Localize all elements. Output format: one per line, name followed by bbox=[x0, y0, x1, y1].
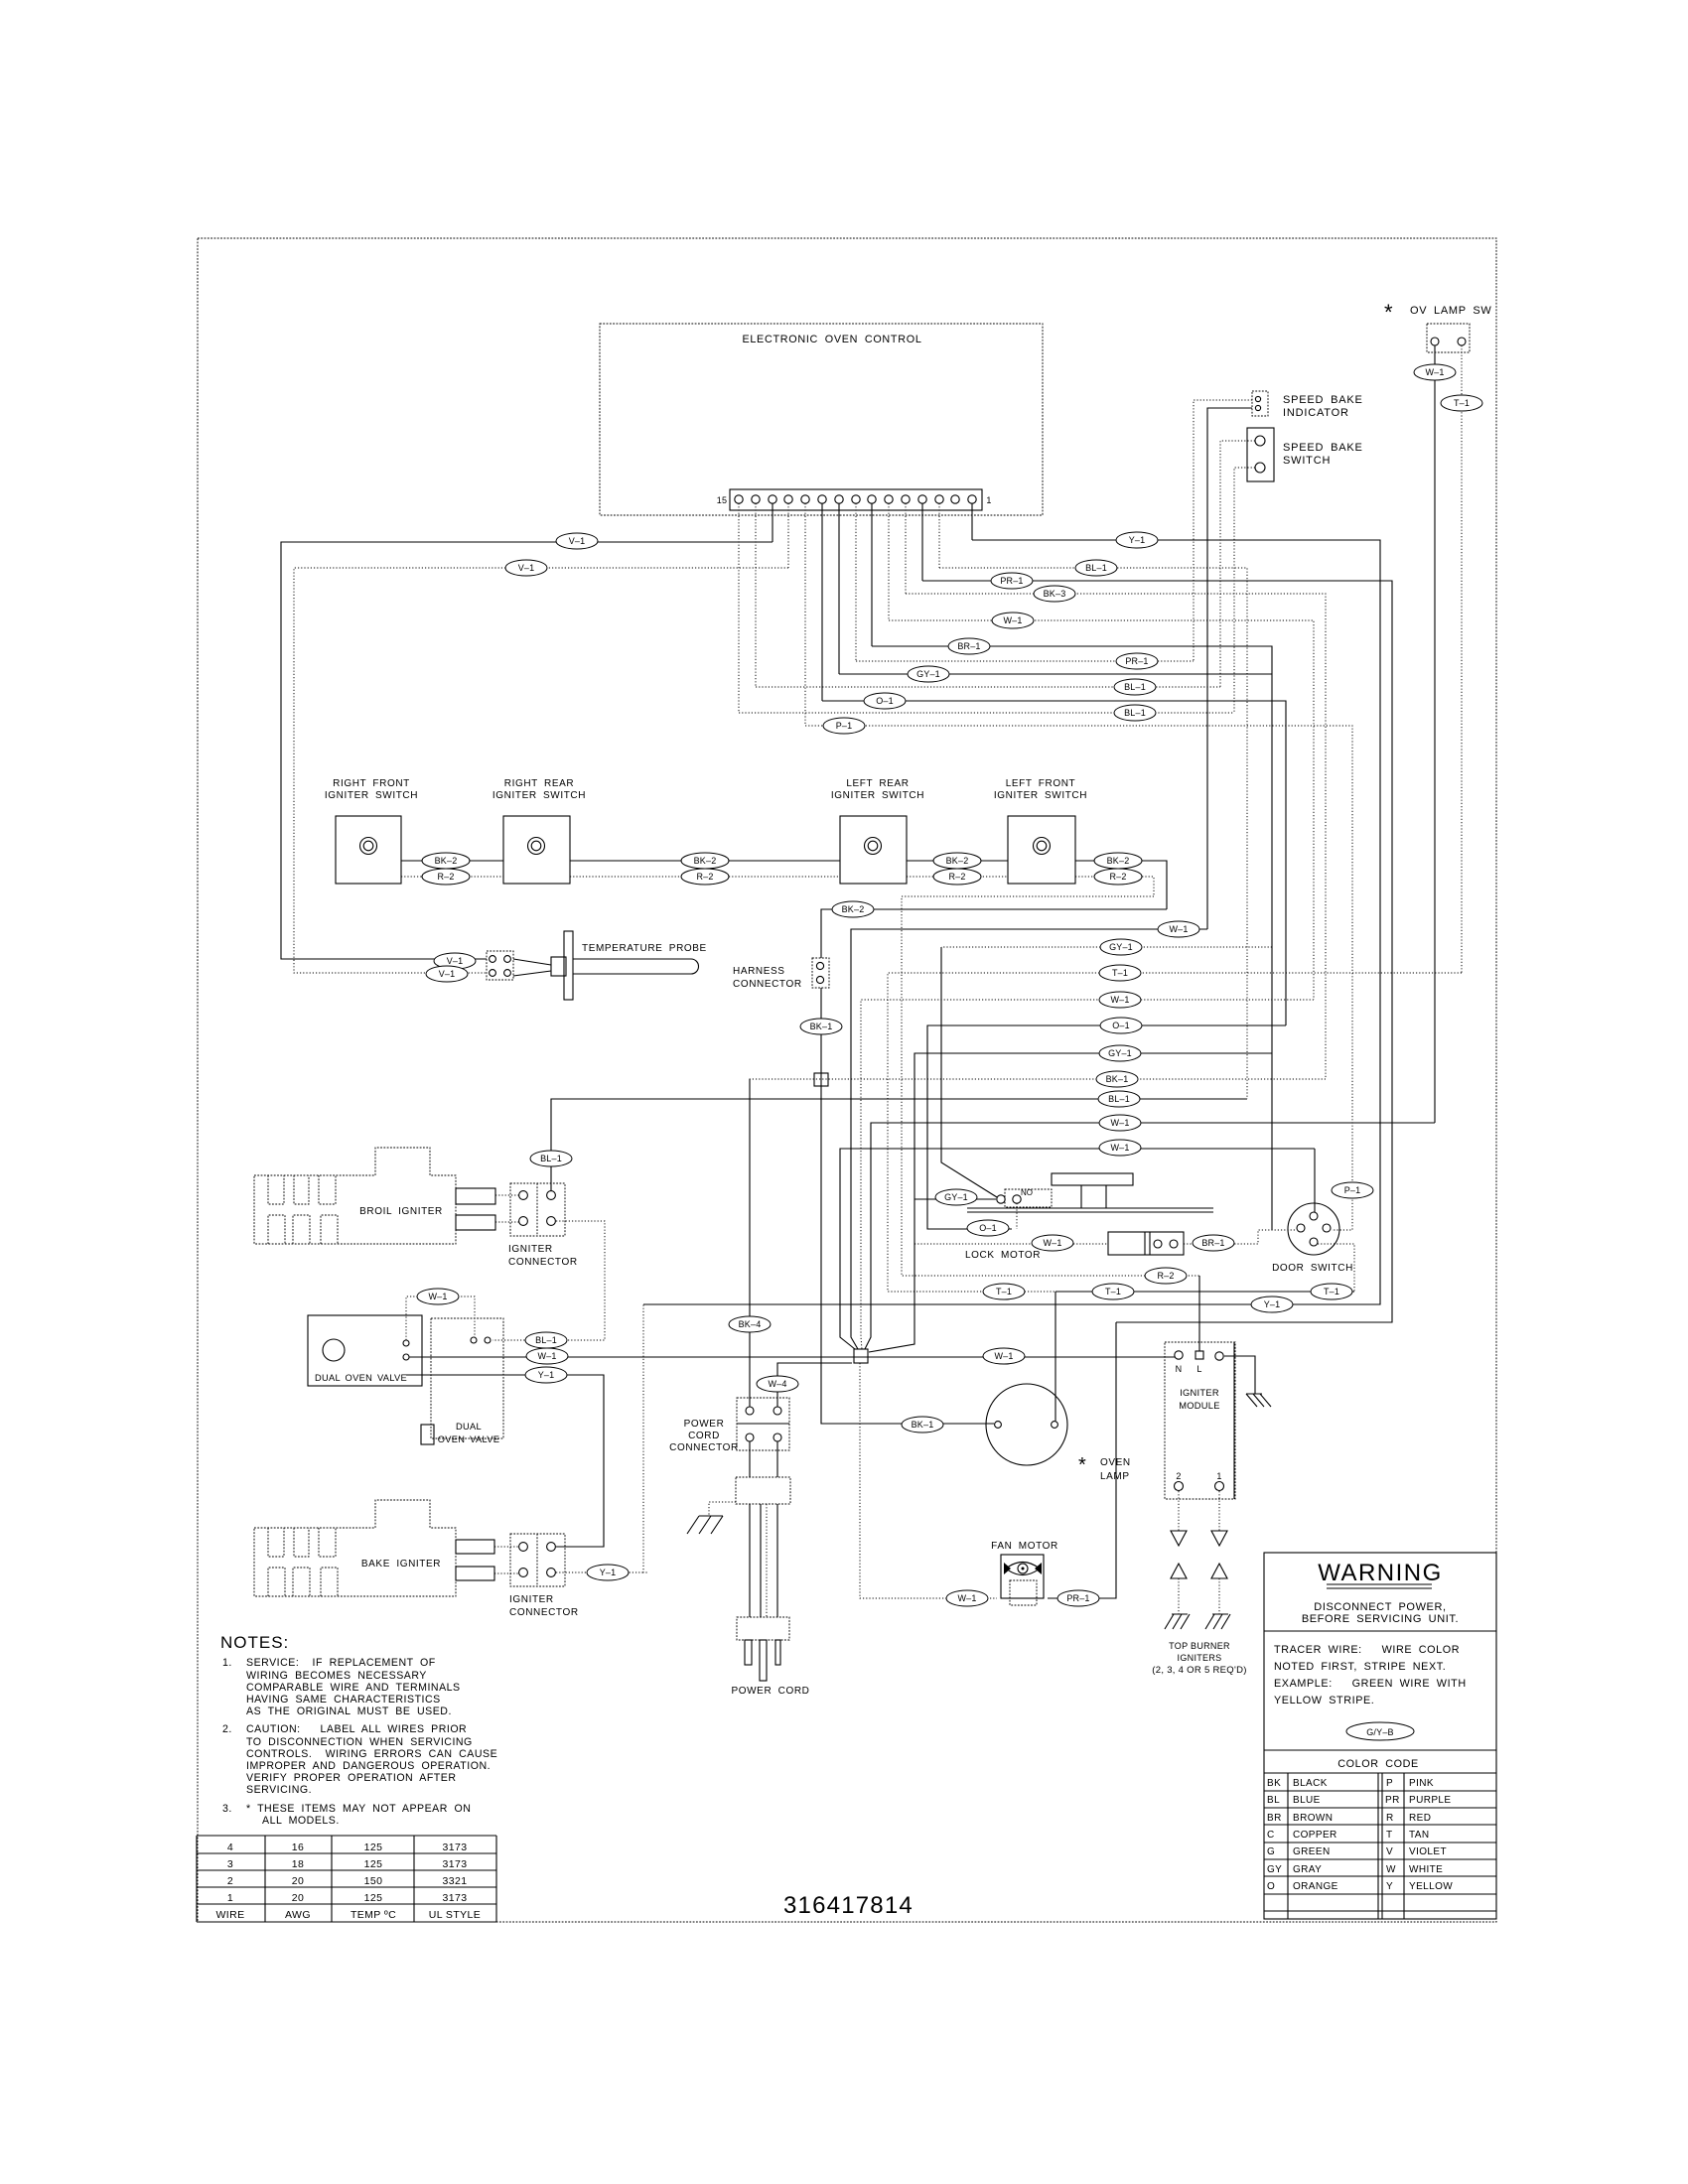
svg-text:C: C bbox=[1267, 1830, 1275, 1841]
svg-text:CONNECTOR: CONNECTOR bbox=[509, 1607, 579, 1618]
svg-text:IGNITER: IGNITER bbox=[508, 1244, 553, 1255]
svg-text:BK–2: BK–2 bbox=[435, 856, 458, 866]
svg-text:Y–1: Y–1 bbox=[600, 1568, 617, 1577]
svg-text:W–1: W–1 bbox=[1043, 1238, 1061, 1248]
svg-text:BK–2: BK–2 bbox=[946, 856, 969, 866]
svg-text:V: V bbox=[1386, 1846, 1393, 1857]
svg-text:DOOR SWITCH: DOOR SWITCH bbox=[1272, 1263, 1353, 1274]
svg-text:EXAMPLE: GREEN WIRE WITH: EXAMPLE: GREEN WIRE WITH bbox=[1274, 1678, 1467, 1690]
svg-text:BEFORE SERVICING UNIT.: BEFORE SERVICING UNIT. bbox=[1302, 1613, 1459, 1625]
svg-text:TOP BURNER: TOP BURNER bbox=[1169, 1641, 1230, 1651]
svg-text:W–1: W–1 bbox=[1003, 615, 1022, 625]
svg-text:SERVICE: IF REPLACEMENT OF: SERVICE: IF REPLACEMENT OF bbox=[246, 1657, 436, 1669]
svg-text:BK–1: BK–1 bbox=[912, 1420, 934, 1430]
svg-text:CONNECTOR: CONNECTOR bbox=[669, 1442, 739, 1453]
svg-text:R–2: R–2 bbox=[437, 872, 454, 882]
svg-text:SPEED BAKE: SPEED BAKE bbox=[1283, 442, 1363, 454]
svg-text:YELLOW: YELLOW bbox=[1409, 1881, 1453, 1892]
svg-text:COLOR CODE: COLOR CODE bbox=[1337, 1758, 1419, 1770]
svg-text:1: 1 bbox=[1216, 1471, 1221, 1481]
svg-text:BLACK: BLACK bbox=[1293, 1778, 1328, 1789]
svg-text:20: 20 bbox=[292, 1892, 304, 1904]
svg-text:G/Y–B: G/Y–B bbox=[1366, 1727, 1394, 1737]
svg-text:BROIL IGNITER: BROIL IGNITER bbox=[359, 1206, 443, 1217]
svg-text:CAUTION: LABEL ALL WIRES PRI: CAUTION: LABEL ALL WIRES PRIOR bbox=[246, 1723, 467, 1735]
svg-text:GY–1: GY–1 bbox=[916, 669, 940, 679]
svg-text:BLUE: BLUE bbox=[1293, 1795, 1321, 1806]
svg-text:CONNECTOR: CONNECTOR bbox=[733, 979, 802, 990]
svg-text:PURPLE: PURPLE bbox=[1409, 1795, 1451, 1806]
svg-text:TRACER WIRE: WIRE COLOR: TRACER WIRE: WIRE COLOR bbox=[1274, 1644, 1460, 1656]
svg-text:BK–2: BK–2 bbox=[694, 856, 717, 866]
svg-text:OV LAMP SW: OV LAMP SW bbox=[1410, 305, 1491, 317]
svg-text:125: 125 bbox=[364, 1892, 383, 1904]
svg-text:3: 3 bbox=[227, 1858, 233, 1870]
svg-text:PR–1: PR–1 bbox=[1000, 576, 1023, 586]
svg-text:* THESE ITEMS MAY NOT APPEAR O: * THESE ITEMS MAY NOT APPEAR ON bbox=[246, 1803, 471, 1815]
svg-text:SERVICING.: SERVICING. bbox=[246, 1784, 312, 1796]
svg-text:BL–1: BL–1 bbox=[540, 1154, 562, 1163]
svg-text:BR–1: BR–1 bbox=[957, 641, 980, 651]
svg-text:125: 125 bbox=[364, 1858, 383, 1870]
svg-text:WHITE: WHITE bbox=[1409, 1864, 1443, 1875]
svg-text:VERIFY PROPER OPERATION AFTER: VERIFY PROPER OPERATION AFTER bbox=[246, 1772, 457, 1784]
svg-text:V–1: V–1 bbox=[439, 969, 456, 979]
svg-text:COPPER: COPPER bbox=[1293, 1830, 1337, 1841]
svg-text:1: 1 bbox=[227, 1892, 233, 1904]
svg-text:P–1: P–1 bbox=[836, 721, 853, 731]
svg-text:T–1: T–1 bbox=[1324, 1287, 1339, 1297]
svg-text:Y: Y bbox=[1386, 1881, 1393, 1892]
svg-text:BK: BK bbox=[1267, 1778, 1281, 1789]
svg-text:FAN MOTOR: FAN MOTOR bbox=[991, 1541, 1058, 1552]
svg-text:HARNESS: HARNESS bbox=[733, 966, 785, 977]
svg-text:IGNITER: IGNITER bbox=[1180, 1388, 1219, 1398]
svg-text:VIOLET: VIOLET bbox=[1409, 1846, 1447, 1857]
svg-text:IGNITER SWITCH: IGNITER SWITCH bbox=[325, 790, 418, 801]
svg-text:MODULE: MODULE bbox=[1179, 1401, 1220, 1411]
svg-text:BR–1: BR–1 bbox=[1201, 1238, 1224, 1248]
svg-text:W: W bbox=[1386, 1864, 1396, 1875]
svg-text:W–1: W–1 bbox=[1425, 367, 1444, 377]
svg-text:DUAL OVEN VALVE: DUAL OVEN VALVE bbox=[315, 1373, 407, 1383]
svg-text:PR–1: PR–1 bbox=[1125, 656, 1148, 666]
svg-text:O–1: O–1 bbox=[979, 1223, 997, 1233]
svg-text:WIRE: WIRE bbox=[215, 1909, 244, 1921]
svg-text:Y–1: Y–1 bbox=[1129, 535, 1146, 545]
svg-text:RIGHT FRONT: RIGHT FRONT bbox=[333, 778, 410, 789]
svg-text:BK–1: BK–1 bbox=[810, 1022, 833, 1031]
svg-text:2: 2 bbox=[227, 1875, 233, 1887]
svg-text:20: 20 bbox=[292, 1875, 304, 1887]
svg-text:BK–1: BK–1 bbox=[1106, 1074, 1129, 1084]
svg-text:BL–1: BL–1 bbox=[1108, 1094, 1130, 1104]
svg-text:16: 16 bbox=[292, 1842, 304, 1853]
svg-text:BR: BR bbox=[1267, 1813, 1282, 1824]
svg-text:BK–3: BK–3 bbox=[1044, 589, 1066, 599]
svg-text:W–4: W–4 bbox=[768, 1379, 786, 1389]
svg-text:3173: 3173 bbox=[443, 1858, 468, 1870]
svg-text:IGNITER: IGNITER bbox=[509, 1594, 554, 1605]
svg-text:NOTED FIRST, STRIPE NEXT.: NOTED FIRST, STRIPE NEXT. bbox=[1274, 1661, 1446, 1673]
svg-text:CORD: CORD bbox=[688, 1431, 720, 1441]
svg-text:O: O bbox=[1267, 1881, 1275, 1892]
svg-text:CONTROLS. WIRING ERRORS CAN C: CONTROLS. WIRING ERRORS CAN CAUSE bbox=[246, 1748, 497, 1760]
svg-text:POWER CORD: POWER CORD bbox=[732, 1686, 810, 1697]
svg-text:W–1: W–1 bbox=[957, 1593, 976, 1603]
svg-text:R–2: R–2 bbox=[696, 872, 713, 882]
svg-text:316417814: 316417814 bbox=[783, 1892, 914, 1919]
svg-text:15: 15 bbox=[717, 495, 728, 505]
svg-text:3173: 3173 bbox=[443, 1842, 468, 1853]
svg-text:GY–1: GY–1 bbox=[1108, 1048, 1132, 1058]
svg-text:T: T bbox=[1386, 1830, 1393, 1841]
svg-text:PINK: PINK bbox=[1409, 1778, 1434, 1789]
svg-text:T–1: T–1 bbox=[1105, 1287, 1121, 1297]
svg-text:*: * bbox=[1078, 1454, 1086, 1476]
svg-text:NOTES:: NOTES: bbox=[220, 1633, 289, 1652]
svg-text:IGNITERS: IGNITERS bbox=[1178, 1653, 1222, 1663]
svg-text:BL–1: BL–1 bbox=[1124, 682, 1146, 692]
svg-text:BL–1: BL–1 bbox=[1085, 563, 1107, 573]
svg-text:Y–1: Y–1 bbox=[1264, 1299, 1281, 1309]
svg-text:P: P bbox=[1386, 1778, 1393, 1789]
svg-text:TO DISCONNECTION WHEN SERVICIN: TO DISCONNECTION WHEN SERVICING bbox=[246, 1736, 473, 1748]
svg-text:N: N bbox=[1176, 1364, 1183, 1374]
svg-text:SWITCH: SWITCH bbox=[1283, 455, 1331, 467]
svg-text:W–1: W–1 bbox=[537, 1351, 556, 1361]
svg-text:GRAY: GRAY bbox=[1293, 1864, 1322, 1875]
svg-text:Y–1: Y–1 bbox=[538, 1370, 555, 1380]
svg-text:LAMP: LAMP bbox=[1100, 1471, 1130, 1482]
svg-text:DUAL: DUAL bbox=[456, 1422, 482, 1432]
svg-text:COMPARABLE WIRE AND TERMINALS: COMPARABLE WIRE AND TERMINALS bbox=[246, 1682, 461, 1694]
svg-text:YELLOW STRIPE.: YELLOW STRIPE. bbox=[1274, 1695, 1374, 1706]
svg-text:W–1: W–1 bbox=[428, 1292, 447, 1301]
svg-text:INDICATOR: INDICATOR bbox=[1283, 407, 1349, 419]
svg-text:1.: 1. bbox=[222, 1657, 232, 1669]
svg-text:3173: 3173 bbox=[443, 1892, 468, 1904]
svg-text:1: 1 bbox=[986, 495, 991, 505]
svg-text:W–1: W–1 bbox=[1110, 995, 1129, 1005]
svg-text:BK–2: BK–2 bbox=[1107, 856, 1130, 866]
svg-text:CONNECTOR: CONNECTOR bbox=[508, 1257, 578, 1268]
svg-text:R–2: R–2 bbox=[1157, 1271, 1174, 1281]
svg-text:2: 2 bbox=[1176, 1471, 1181, 1481]
svg-text:PR–1: PR–1 bbox=[1066, 1593, 1089, 1603]
svg-text:OVEN: OVEN bbox=[1100, 1457, 1131, 1468]
svg-text:TEMP ºC: TEMP ºC bbox=[351, 1909, 396, 1921]
svg-text:(2, 3, 4 OR 5 REQ'D): (2, 3, 4 OR 5 REQ'D) bbox=[1152, 1665, 1246, 1676]
svg-text:IGNITER SWITCH: IGNITER SWITCH bbox=[831, 790, 924, 801]
svg-text:W–1: W–1 bbox=[994, 1351, 1013, 1361]
svg-text:UL STYLE: UL STYLE bbox=[429, 1909, 481, 1921]
svg-text:V–1: V–1 bbox=[569, 536, 586, 546]
svg-text:R: R bbox=[1386, 1813, 1394, 1824]
svg-text:ALL MODELS.: ALL MODELS. bbox=[262, 1815, 340, 1827]
svg-text:T–1: T–1 bbox=[1112, 968, 1128, 978]
svg-text:150: 150 bbox=[364, 1875, 383, 1887]
svg-text:P–1: P–1 bbox=[1344, 1185, 1361, 1195]
svg-text:GY: GY bbox=[1267, 1864, 1282, 1875]
svg-text:IGNITER SWITCH: IGNITER SWITCH bbox=[492, 790, 586, 801]
svg-text:O–1: O–1 bbox=[876, 696, 894, 706]
svg-text:OVEN VALVE: OVEN VALVE bbox=[438, 1434, 500, 1444]
svg-text:BK–2: BK–2 bbox=[842, 904, 865, 914]
svg-text:V–1: V–1 bbox=[518, 563, 535, 573]
svg-text:PR: PR bbox=[1385, 1795, 1400, 1806]
svg-text:ORANGE: ORANGE bbox=[1293, 1881, 1338, 1892]
svg-text:BL: BL bbox=[1267, 1795, 1280, 1806]
svg-text:R–2: R–2 bbox=[1109, 872, 1126, 882]
svg-text:4: 4 bbox=[227, 1842, 233, 1853]
svg-text:W–1: W–1 bbox=[1110, 1118, 1129, 1128]
svg-text:3321: 3321 bbox=[443, 1875, 468, 1887]
svg-text:WARNING: WARNING bbox=[1318, 1560, 1443, 1586]
svg-text:L: L bbox=[1196, 1364, 1201, 1374]
svg-text:BL–1: BL–1 bbox=[535, 1335, 557, 1345]
svg-text:LEFT FRONT: LEFT FRONT bbox=[1006, 778, 1075, 789]
svg-text:3.: 3. bbox=[222, 1803, 232, 1815]
svg-text:IMPROPER AND DANGEROUS OPERATI: IMPROPER AND DANGEROUS OPERATION. bbox=[246, 1760, 491, 1772]
svg-text:ELECTRONIC OVEN CONTROL: ELECTRONIC OVEN CONTROL bbox=[742, 334, 921, 345]
svg-text:AWG: AWG bbox=[285, 1909, 311, 1921]
svg-text:LOCK MOTOR: LOCK MOTOR bbox=[965, 1250, 1041, 1261]
svg-text:W–1: W–1 bbox=[1110, 1143, 1129, 1153]
svg-text:G: G bbox=[1267, 1846, 1275, 1857]
svg-text:GY–1: GY–1 bbox=[944, 1192, 968, 1202]
svg-text:T–1: T–1 bbox=[1454, 398, 1470, 408]
svg-text:BAKE IGNITER: BAKE IGNITER bbox=[361, 1559, 441, 1570]
svg-text:18: 18 bbox=[292, 1858, 304, 1870]
svg-text:HAVING SAME CHARACTERISTICS: HAVING SAME CHARACTERISTICS bbox=[246, 1694, 441, 1706]
svg-text:125: 125 bbox=[364, 1842, 383, 1853]
svg-text:RED: RED bbox=[1409, 1813, 1431, 1824]
svg-text:WIRING BECOMES NECESSARY: WIRING BECOMES NECESSARY bbox=[246, 1670, 427, 1682]
svg-text:2.: 2. bbox=[222, 1723, 232, 1735]
svg-text:BK–4: BK–4 bbox=[739, 1319, 762, 1329]
svg-text:BL–1: BL–1 bbox=[1124, 708, 1146, 718]
svg-text:POWER: POWER bbox=[684, 1419, 725, 1430]
svg-text:IGNITER SWITCH: IGNITER SWITCH bbox=[994, 790, 1087, 801]
svg-text:GY–1: GY–1 bbox=[1109, 942, 1133, 952]
svg-text:O–1: O–1 bbox=[1112, 1021, 1130, 1030]
svg-text:V–1: V–1 bbox=[447, 956, 464, 966]
svg-text:TEMPERATURE PROBE: TEMPERATURE PROBE bbox=[582, 943, 707, 954]
svg-text:R–2: R–2 bbox=[948, 872, 965, 882]
svg-text:T–1: T–1 bbox=[996, 1287, 1012, 1297]
svg-text:DISCONNECT POWER,: DISCONNECT POWER, bbox=[1314, 1601, 1446, 1613]
svg-text:AS THE ORIGINAL MUST BE USED.: AS THE ORIGINAL MUST BE USED. bbox=[246, 1706, 452, 1717]
svg-text:RIGHT REAR: RIGHT REAR bbox=[504, 778, 575, 789]
svg-text:GREEN: GREEN bbox=[1293, 1846, 1331, 1857]
svg-text:SPEED BAKE: SPEED BAKE bbox=[1283, 394, 1363, 406]
svg-text:TAN: TAN bbox=[1409, 1830, 1429, 1841]
svg-text:W–1: W–1 bbox=[1169, 924, 1188, 934]
svg-text:LEFT REAR: LEFT REAR bbox=[846, 778, 909, 789]
svg-text:BROWN: BROWN bbox=[1293, 1813, 1333, 1824]
svg-text:NO: NO bbox=[1021, 1188, 1033, 1197]
svg-text:*: * bbox=[1384, 300, 1393, 325]
